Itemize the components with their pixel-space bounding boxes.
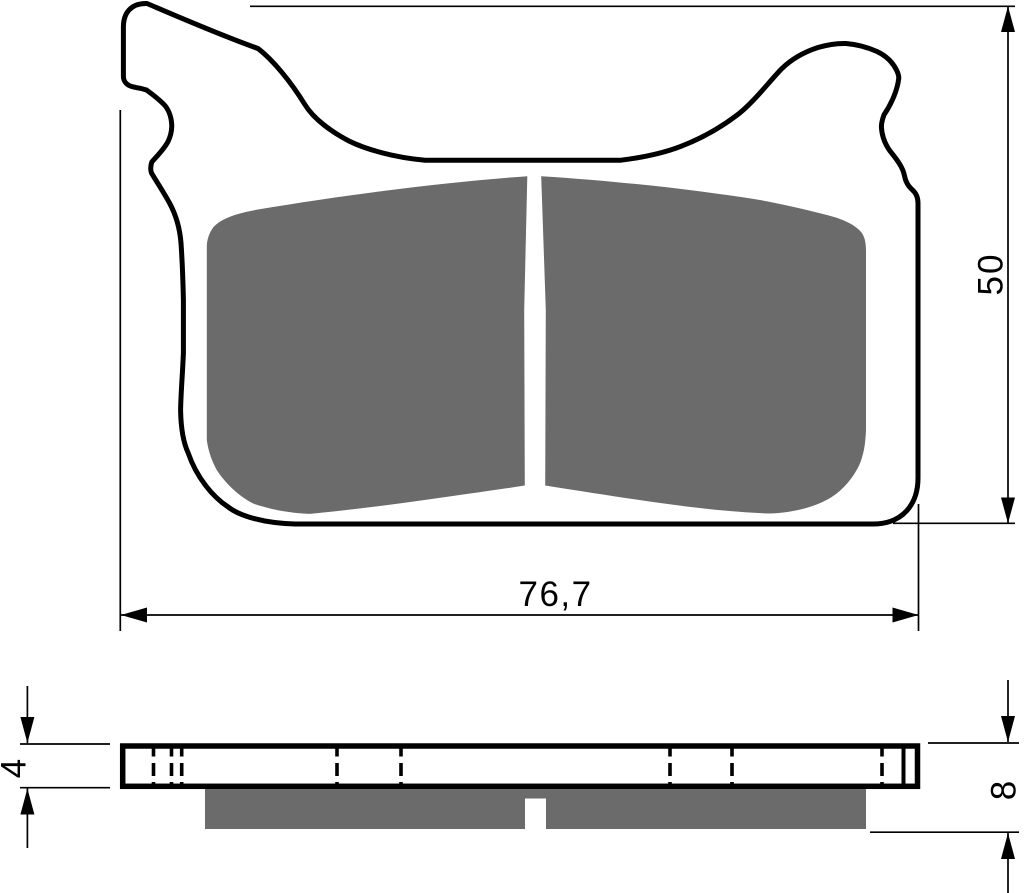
svg-text:8: 8 [984,781,1023,800]
svg-text:50: 50 [972,253,1011,296]
svg-text:76,7: 76,7 [519,575,593,614]
svg-text:4: 4 [0,759,34,778]
